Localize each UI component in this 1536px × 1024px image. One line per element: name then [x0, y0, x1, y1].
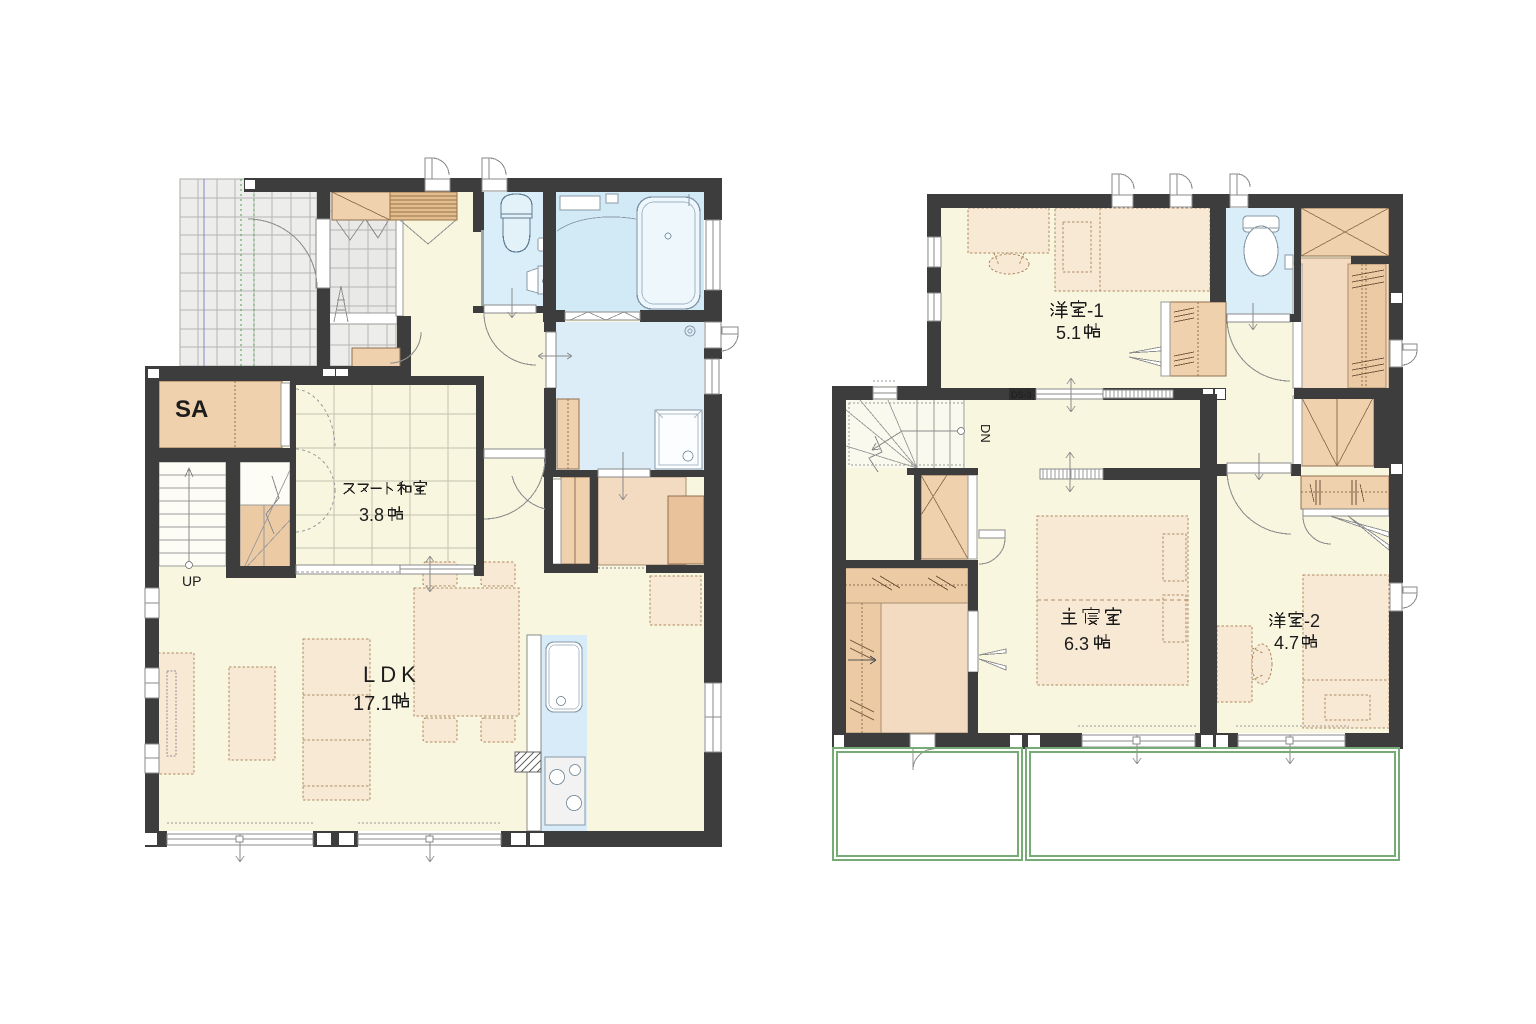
svg-text:UP: UP	[182, 573, 201, 589]
svg-text:-2: -2	[1304, 611, 1320, 631]
svg-text:DN: DN	[978, 424, 993, 443]
svg-text:DS-3: DS-3	[1011, 390, 1032, 400]
svg-text:3.8: 3.8	[359, 505, 384, 525]
svg-text:LDK: LDK	[363, 662, 421, 687]
svg-text:4.7: 4.7	[1274, 633, 1299, 653]
svg-text:5.1: 5.1	[1056, 323, 1081, 343]
svg-text:-1: -1	[1087, 301, 1104, 322]
svg-text:17.1: 17.1	[353, 693, 392, 715]
svg-text:SA: SA	[175, 396, 208, 423]
svg-text:6.3: 6.3	[1064, 634, 1089, 654]
